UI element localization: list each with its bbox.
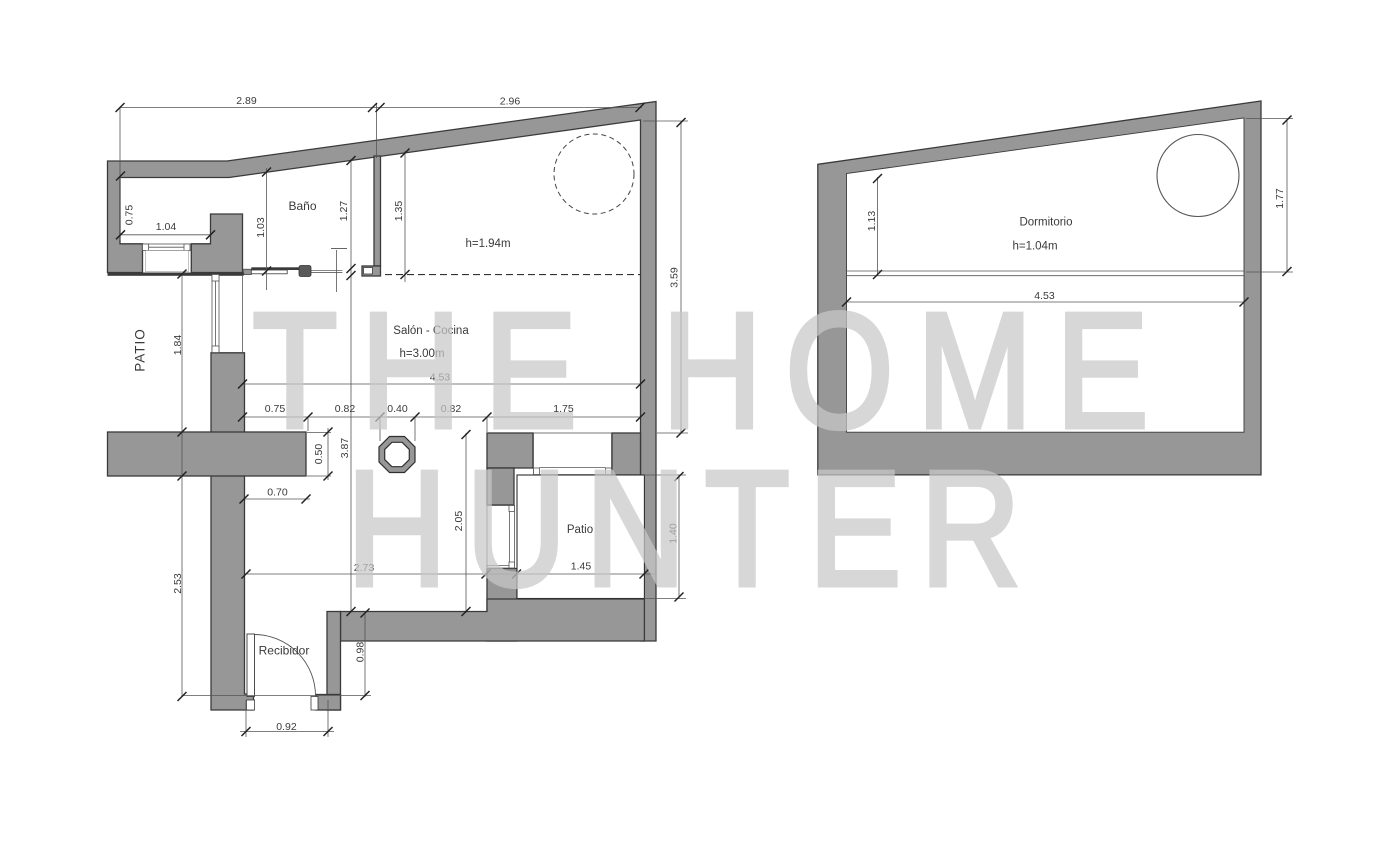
svg-text:Dormitorio: Dormitorio (1019, 217, 1072, 229)
svg-text:1.77: 1.77 (1274, 188, 1286, 209)
svg-text:1.84: 1.84 (172, 335, 184, 356)
svg-text:h=1.94m: h=1.94m (465, 238, 510, 250)
svg-text:0.92: 0.92 (276, 721, 297, 733)
svg-text:Recibidor: Recibidor (259, 644, 310, 658)
svg-text:2.89: 2.89 (236, 95, 257, 107)
svg-text:1.27: 1.27 (338, 201, 350, 222)
svg-text:HUNTER: HUNTER (347, 437, 1040, 620)
svg-text:0.70: 0.70 (267, 487, 288, 499)
svg-text:2.96: 2.96 (500, 96, 521, 108)
svg-text:0.75: 0.75 (124, 205, 136, 226)
svg-text:1.04: 1.04 (156, 221, 177, 233)
svg-text:Baño: Baño (288, 199, 316, 213)
svg-text:1.35: 1.35 (393, 201, 405, 222)
svg-text:PATIO: PATIO (133, 328, 148, 372)
svg-text:1.13: 1.13 (866, 211, 878, 232)
svg-text:THE HOME: THE HOME (252, 279, 1171, 462)
svg-text:h=1.04m: h=1.04m (1012, 241, 1057, 253)
svg-text:0.98: 0.98 (355, 642, 367, 663)
svg-text:1.03: 1.03 (255, 217, 267, 238)
svg-text:2.53: 2.53 (172, 573, 184, 594)
